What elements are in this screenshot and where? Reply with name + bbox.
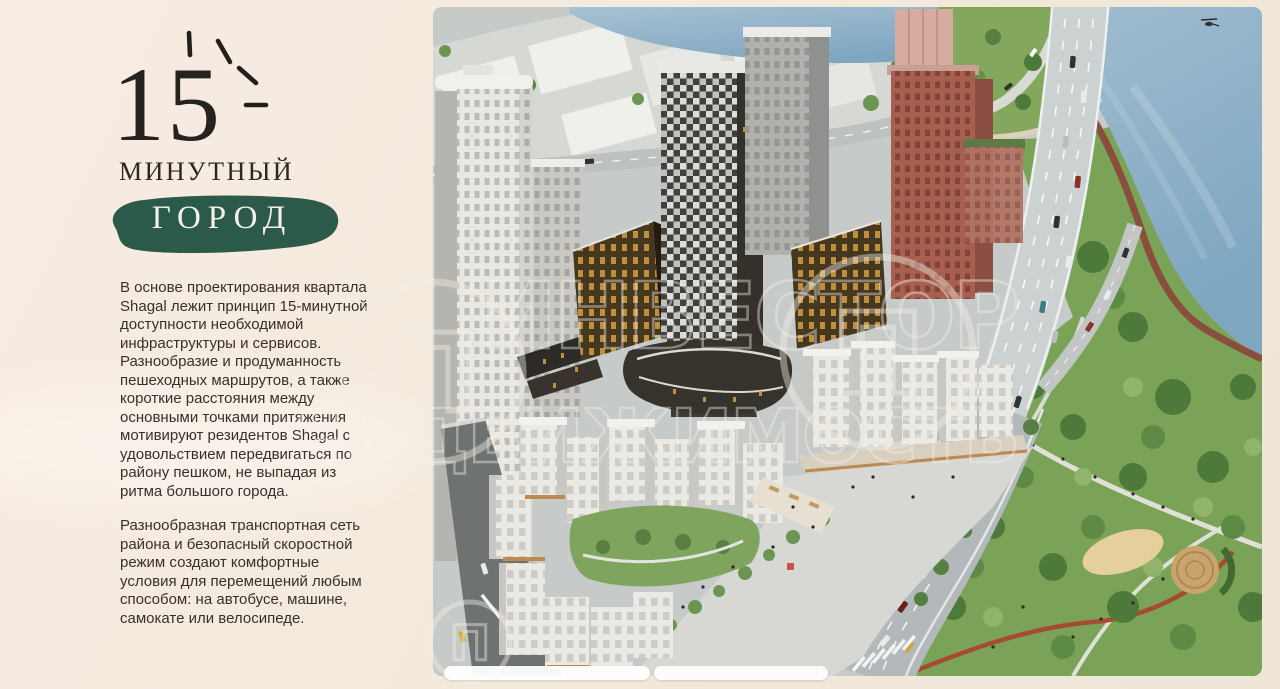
paragraph-transport: Разнообразная транспортная сеть района и… — [120, 517, 368, 628]
body-copy: В основе проектирования квартала Shagal … — [120, 279, 368, 644]
round-platform — [1171, 546, 1219, 594]
district-aerial-render — [433, 7, 1262, 676]
paragraph-walkability: В основе проектирования квартала Shagal … — [120, 279, 368, 501]
gray-tower — [743, 27, 831, 255]
clock-ticks-icon — [176, 26, 272, 114]
media-progress-bar[interactable] — [444, 666, 650, 680]
district-render-illustration — [433, 7, 1262, 676]
media-progress-bar-track[interactable] — [654, 666, 828, 680]
headline-word-minutny: МИНУТНЫЙ — [119, 157, 294, 187]
headline-gorod-block: ГОРОД — [100, 193, 344, 257]
headline-word-gorod: ГОРОД — [100, 200, 344, 237]
red-kiosk — [787, 563, 794, 570]
slide-page: 15 МИНУТНЫЙ ГОРОД В основе проектировани… — [0, 0, 1280, 689]
